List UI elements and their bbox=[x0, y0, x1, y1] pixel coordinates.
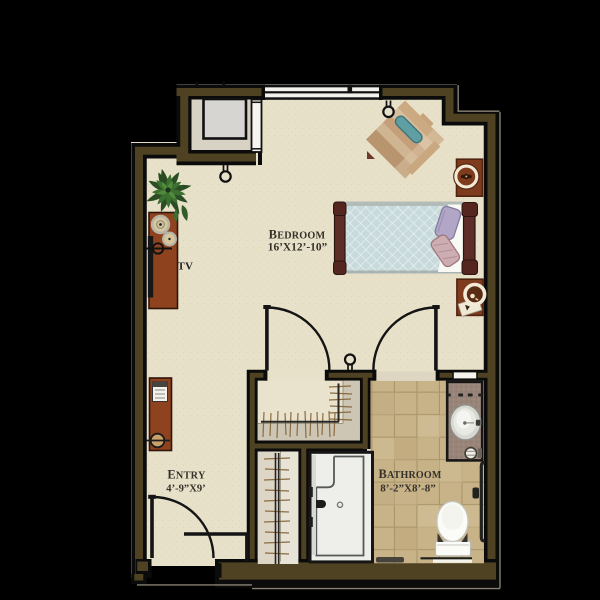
svg-text:16’X12’-10”: 16’X12’-10” bbox=[268, 241, 328, 253]
svg-text:8’-2”X8’-8”: 8’-2”X8’-8” bbox=[380, 482, 436, 494]
svg-text:4’-9”X9’: 4’-9”X9’ bbox=[166, 483, 205, 494]
svg-text:BATHROOM: BATHROOM bbox=[378, 467, 441, 481]
svg-text:BEDROOM: BEDROOM bbox=[269, 228, 326, 242]
svg-text:TV: TV bbox=[178, 261, 194, 273]
svg-text:ENTRY: ENTRY bbox=[167, 468, 206, 482]
